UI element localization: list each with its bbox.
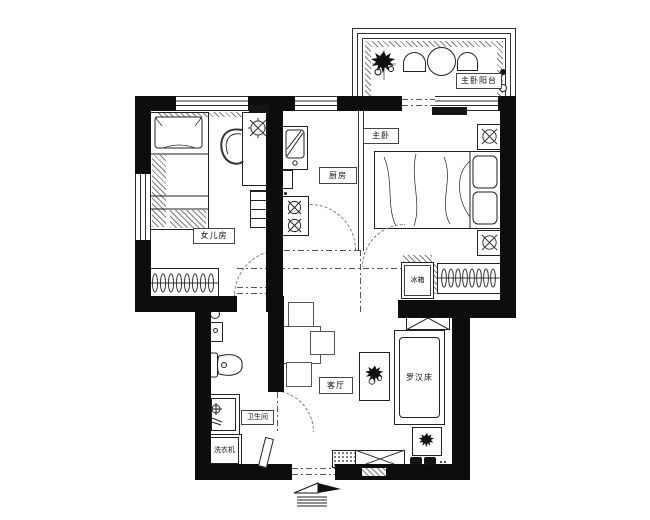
desk-chair xyxy=(217,125,245,167)
room-label-daughter-room: 女儿房 xyxy=(193,228,235,244)
door-arc-master xyxy=(362,224,405,267)
burner-icon xyxy=(286,217,303,234)
threshold-entry xyxy=(292,468,335,469)
dining-chair xyxy=(286,362,312,387)
luohan-bed-label: 罗汉床 xyxy=(394,372,445,384)
threshold-daughter xyxy=(237,293,266,294)
wall-bath-east xyxy=(268,296,284,392)
room-label-living-room: 客厅 xyxy=(319,377,353,394)
shoes xyxy=(410,457,422,465)
balcony-arch-decor xyxy=(403,52,426,72)
bedside-lamp-icon xyxy=(479,232,500,253)
wall-bottom-1 xyxy=(195,464,292,480)
threshold-kitchen xyxy=(284,250,360,251)
shoes xyxy=(424,457,436,465)
room-label-master-balcony: 主卧阳台 xyxy=(456,73,502,89)
wall-center xyxy=(266,111,283,297)
fridge-top-hatch xyxy=(403,255,432,262)
dining-chair xyxy=(310,331,335,355)
dining-chair xyxy=(288,302,314,328)
balcony-plant-icon xyxy=(368,48,400,82)
hanger-icon xyxy=(148,269,218,297)
toilet xyxy=(209,350,245,380)
hanger-icon xyxy=(438,264,500,293)
dot xyxy=(440,461,442,463)
bedside-lamp-icon xyxy=(479,126,500,147)
hallway-dashline xyxy=(237,268,405,269)
threshold-mat xyxy=(362,468,386,476)
wall-living-east xyxy=(452,318,470,480)
threshold-daughter xyxy=(237,287,266,288)
plant-icon xyxy=(363,362,387,390)
hallway-dashline-v xyxy=(360,250,361,312)
dot xyxy=(444,461,446,463)
wall-top-3 xyxy=(337,96,402,111)
curtain-box-daughter xyxy=(249,105,269,113)
wall-daughter-bottom xyxy=(135,296,237,312)
room-label-kitchen: 厨房 xyxy=(319,167,357,184)
threshold-balcony xyxy=(402,99,435,100)
daughter-bed-hatch xyxy=(152,155,166,227)
window-daughter-room xyxy=(176,96,248,111)
curtain-box-master xyxy=(432,107,467,115)
window-kitchen xyxy=(295,96,337,111)
threshold-bathroom xyxy=(277,392,278,432)
master-bed xyxy=(374,151,501,229)
plant-icon xyxy=(416,431,438,453)
door-arc-kitchen xyxy=(310,204,356,250)
door-arc-bathroom xyxy=(272,390,314,432)
daughter-bed-blanket-hatch xyxy=(170,210,206,228)
kitchen-sink xyxy=(282,126,308,170)
wall-right xyxy=(500,96,516,318)
threshold-balcony xyxy=(402,105,435,106)
entry-arrow-icon xyxy=(291,479,345,506)
bath-fixture-dot xyxy=(213,328,218,333)
balcony-circle-decor xyxy=(427,47,456,76)
wall-master-south xyxy=(398,300,516,318)
burner-icon xyxy=(286,199,303,216)
shower-head-icon xyxy=(209,402,225,426)
room-label-master-bedroom: 主卧 xyxy=(363,128,399,144)
wall-left-1 xyxy=(135,96,151,174)
threshold-entry xyxy=(292,474,335,475)
wall-dot xyxy=(284,192,287,195)
room-label-bathroom: 卫生间 xyxy=(241,410,274,425)
window-daughter-side xyxy=(135,174,151,240)
balcony-arch-decor xyxy=(457,52,478,71)
wall-bottom-2 xyxy=(335,464,470,480)
fridge-label: 冰箱 xyxy=(404,265,431,296)
washing-machine-label: 洗衣机 xyxy=(209,446,240,455)
floor-plan: 主卧阳台 xyxy=(0,0,650,520)
